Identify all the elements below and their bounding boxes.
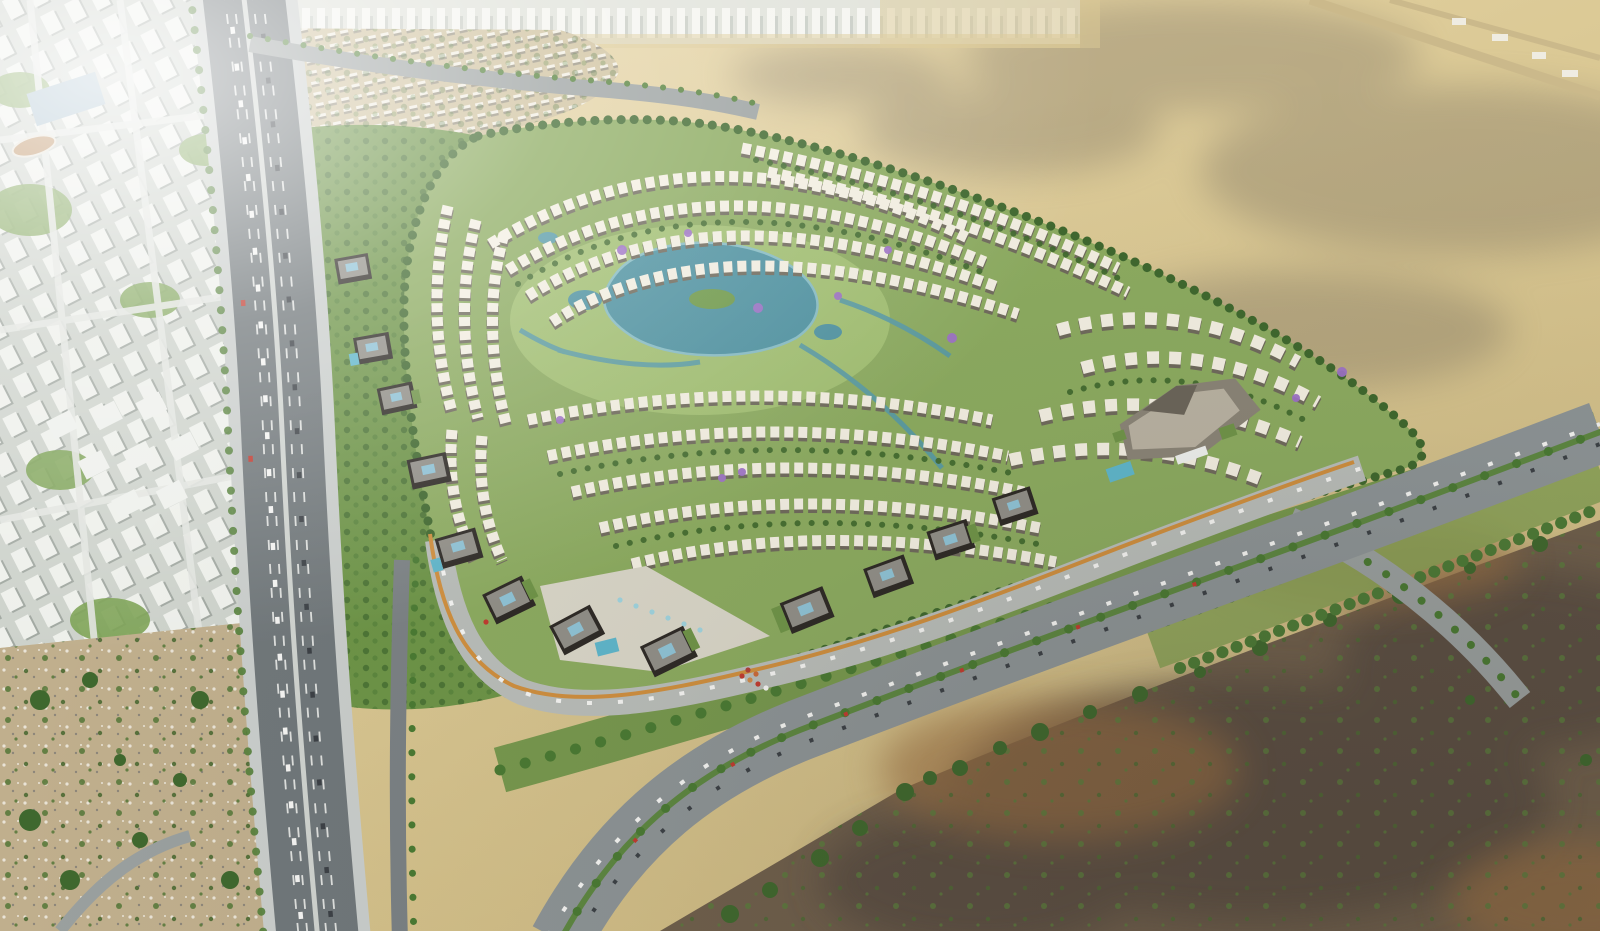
aerial-render xyxy=(0,0,1600,931)
vignette-overlay xyxy=(0,0,1600,931)
